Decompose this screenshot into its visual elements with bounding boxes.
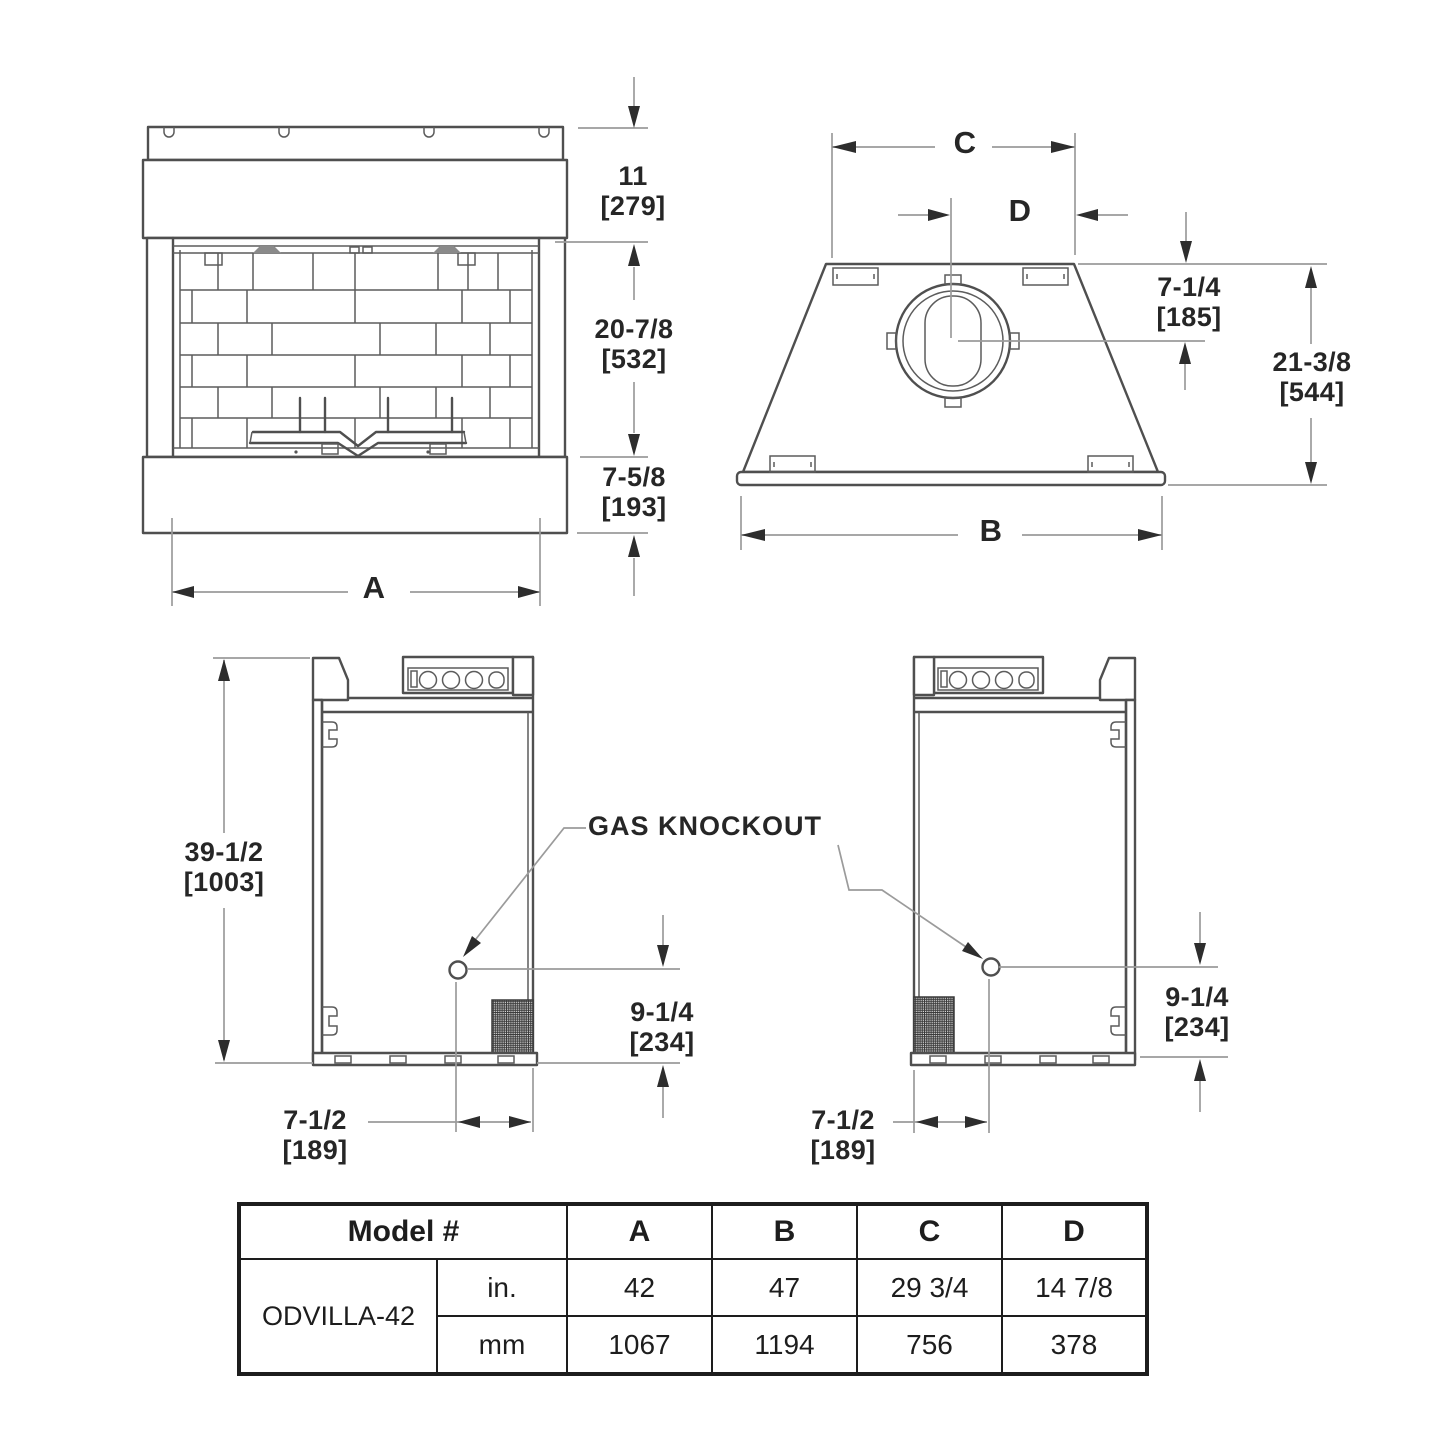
dim-top-flue-center: 7-1/4 [185] <box>1146 272 1232 332</box>
cell-d-mm: 378 <box>1002 1316 1147 1374</box>
gas-line-knockouts-top <box>403 657 533 695</box>
dim-right-knockout-height: 9-1/4 [234] <box>1151 982 1243 1042</box>
table-row: ODVILLA-42 in. 42 47 29 3/4 14 7/8 <box>239 1259 1147 1316</box>
cell-unit: in. <box>437 1259 567 1316</box>
dim-front-opening-height: 20-7/8 [532] <box>582 314 686 374</box>
dim-left-knockout-depth: 7-1/2 [189] <box>266 1105 364 1165</box>
left-side-view <box>313 657 537 1065</box>
cell-b-in: 47 <box>712 1259 857 1316</box>
gas-line-knockouts-top <box>914 657 1043 695</box>
vent-grille-right <box>914 997 954 1055</box>
cell-d-in: 14 7/8 <box>1002 1259 1147 1316</box>
technical-drawing-page: 11 [279] 20-7/8 [532] 7-5/8 [193] A C D … <box>0 0 1445 1445</box>
dim-right-knockout-depth: 7-1/2 [189] <box>794 1105 892 1165</box>
cell-model-name: ODVILLA-42 <box>239 1259 437 1374</box>
header-c: C <box>857 1204 1002 1259</box>
gas-knockout-hole-right <box>983 959 1000 976</box>
cell-a-in: 42 <box>567 1259 712 1316</box>
front-view <box>143 127 567 533</box>
cell-c-in: 29 3/4 <box>857 1259 1002 1316</box>
dim-label-d: D <box>998 196 1042 226</box>
gas-knockout-leaders <box>463 828 983 959</box>
dim-top-depth: 21-3/8 [544] <box>1260 347 1364 407</box>
cell-c-mm: 756 <box>857 1316 1002 1374</box>
gas-knockout-hole-left <box>450 962 467 979</box>
dim-front-top-height: 11 [279] <box>585 161 681 221</box>
dim-label-a: A <box>352 573 396 603</box>
header-b: B <box>712 1204 857 1259</box>
cell-unit: mm <box>437 1316 567 1374</box>
cell-b-mm: 1194 <box>712 1316 857 1374</box>
gas-knockout-callout: GAS KNOCKOUT <box>588 811 868 841</box>
dimensions-table: Model # A B C D ODVILLA-42 in. 42 47 29 … <box>237 1202 1149 1376</box>
header-model: Model # <box>239 1204 567 1259</box>
cell-a-mm: 1067 <box>567 1316 712 1374</box>
right-side-view <box>911 657 1135 1065</box>
vent-grille-left <box>492 1000 533 1057</box>
dim-left-knockout-height: 9-1/4 [234] <box>616 997 708 1057</box>
table-header-row: Model # A B C D <box>239 1204 1147 1259</box>
header-a: A <box>567 1204 712 1259</box>
dim-label-b: B <box>969 516 1013 546</box>
dim-left-height: 39-1/2 [1003] <box>170 837 278 897</box>
header-d: D <box>1002 1204 1147 1259</box>
dim-front-base-height: 7-5/8 [193] <box>582 462 686 522</box>
dim-label-c: C <box>943 128 987 158</box>
